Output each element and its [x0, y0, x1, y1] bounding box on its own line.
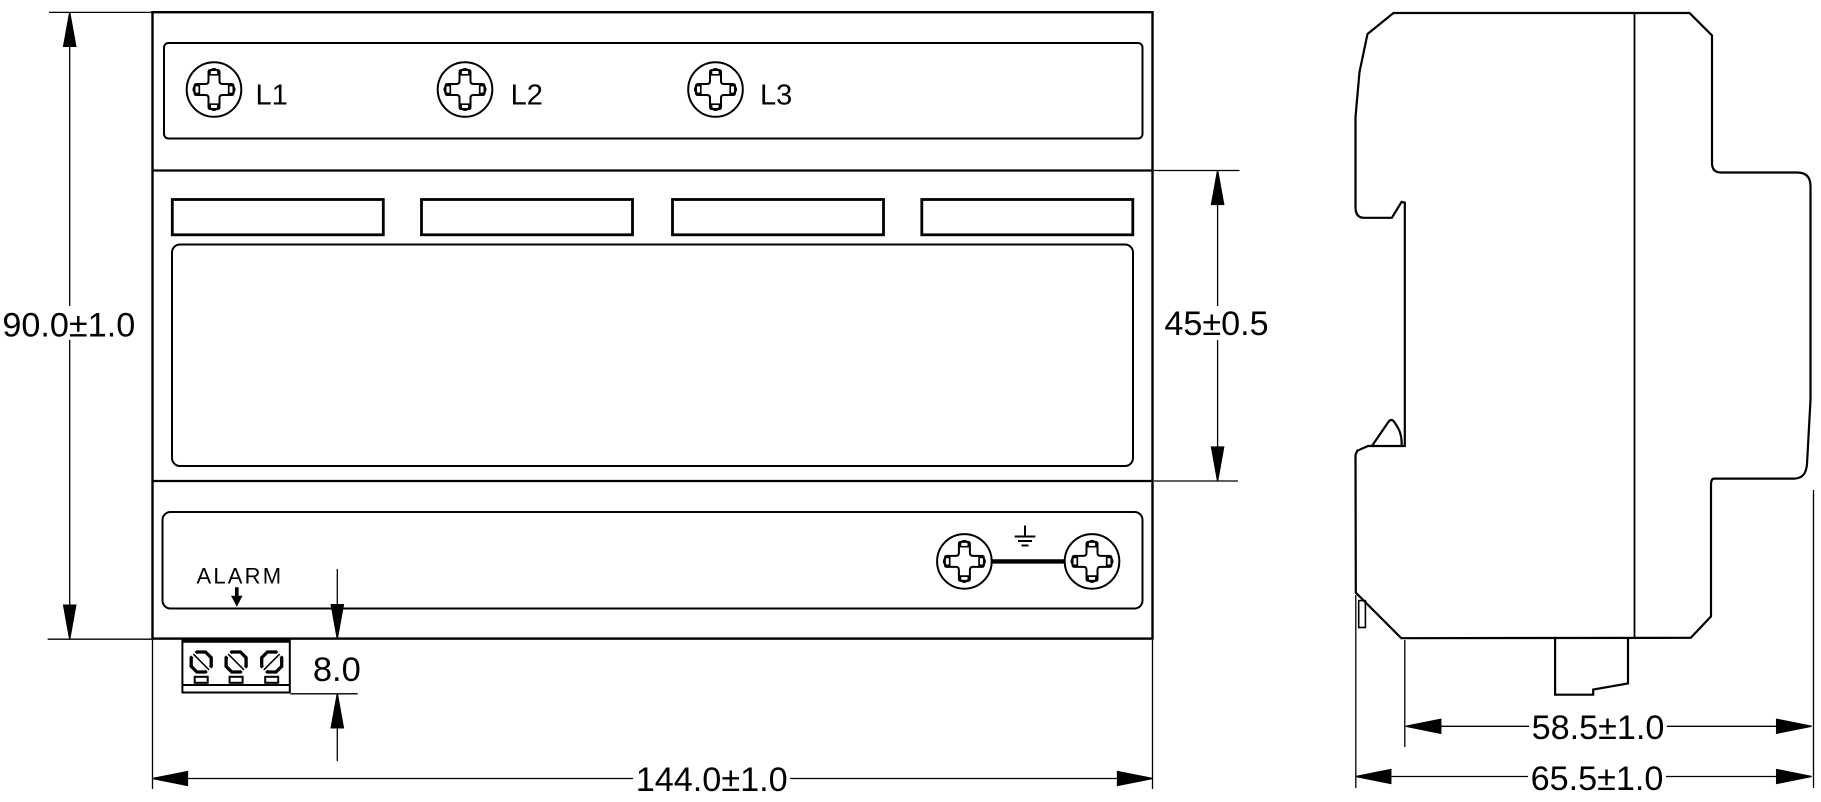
svg-text:58.5±1.0: 58.5±1.0 [1532, 709, 1665, 747]
svg-text:L3: L3 [760, 80, 792, 112]
svg-text:L2: L2 [511, 80, 543, 112]
svg-text:65.5±1.0: 65.5±1.0 [1531, 760, 1664, 798]
svg-text:8.0: 8.0 [313, 651, 361, 689]
svg-text:ALARM: ALARM [197, 563, 284, 588]
svg-text:90.0±1.0: 90.0±1.0 [2, 307, 135, 345]
svg-text:144.0±1.0: 144.0±1.0 [636, 761, 788, 799]
svg-text:L1: L1 [256, 80, 288, 112]
svg-text:45±0.5: 45±0.5 [1164, 305, 1268, 343]
